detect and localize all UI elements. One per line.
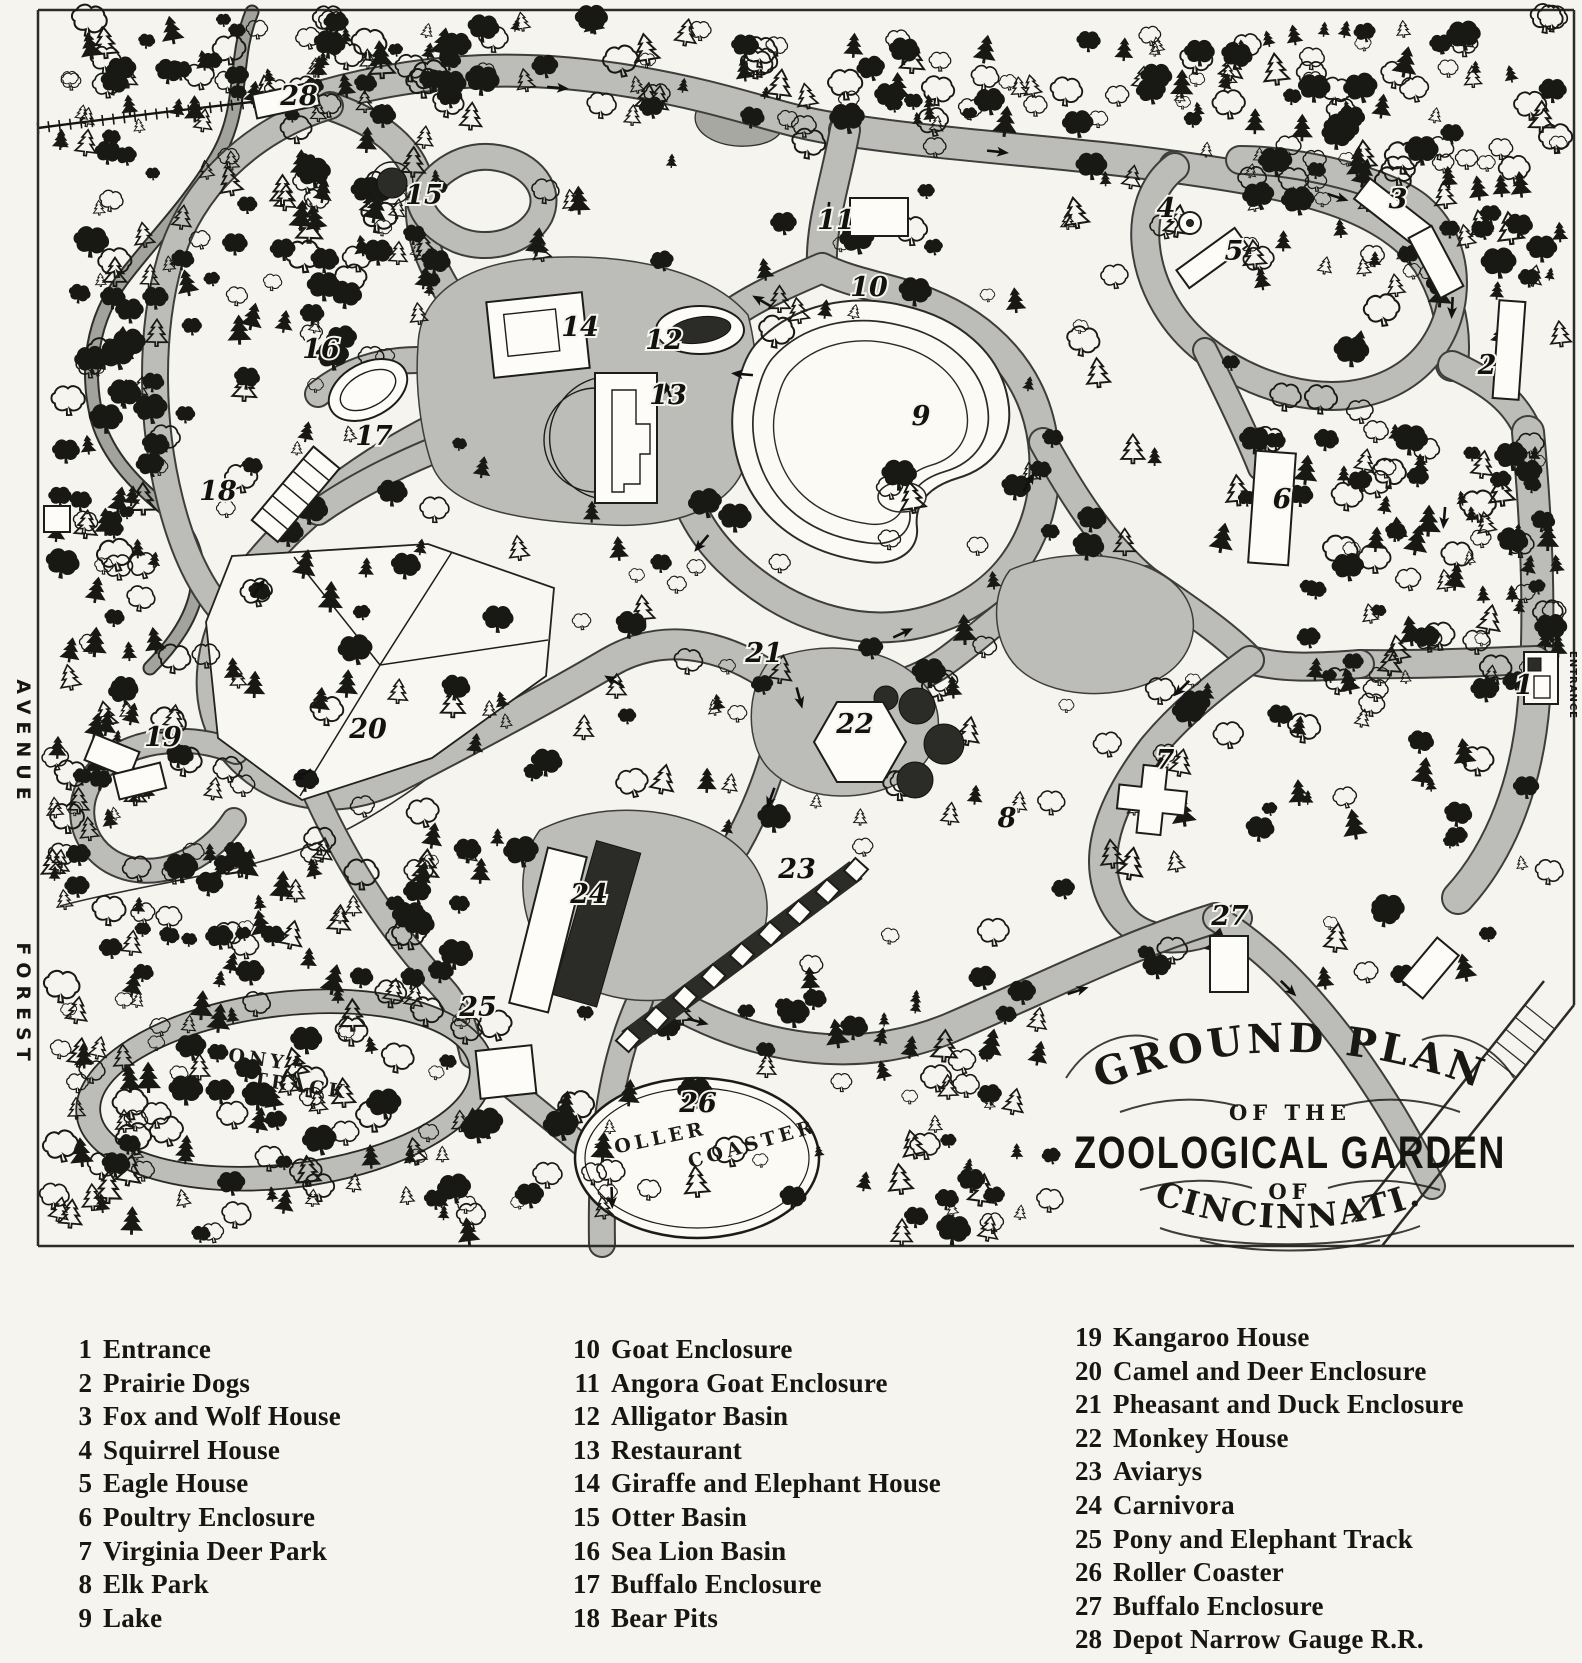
map-marker-23: 23 — [777, 854, 816, 885]
map-marker-19: 19 — [144, 722, 182, 753]
map-marker-4: 4 — [1157, 193, 1176, 224]
map-marker-11: 11 — [817, 205, 855, 236]
map-marker-18: 18 — [199, 476, 237, 507]
map-marker-1: 1 — [1515, 670, 1534, 701]
entrance-gate-label: ENTRANCE — [1567, 651, 1578, 719]
map-marker-3: 3 — [1389, 184, 1408, 215]
map-marker-2: 2 — [1477, 350, 1497, 381]
west-gate-shed — [44, 506, 70, 532]
map-marker-12: 12 — [645, 325, 683, 356]
map-marker-16: 16 — [302, 334, 340, 365]
map-marker-24: 24 — [569, 879, 608, 910]
map-marker-10: 10 — [850, 272, 888, 303]
zoo-map: PONY TRACK ROLLER COASTER — [0, 0, 1582, 1663]
map-marker-15: 15 — [405, 180, 443, 211]
map-marker-17: 17 — [355, 421, 393, 452]
map-marker-14: 14 — [561, 312, 599, 343]
forest-label: FOREST — [12, 942, 34, 1067]
title-line-zoological-garden: ZOOLOGICAL GARDEN — [1074, 1127, 1506, 1178]
map-marker-27: 27 — [1210, 901, 1249, 932]
map-marker-7: 7 — [1156, 745, 1175, 776]
angora-goat-building — [850, 198, 908, 236]
map-marker-28: 28 — [279, 81, 318, 112]
map-marker-13: 13 — [649, 380, 687, 411]
map-marker-5: 5 — [1225, 236, 1244, 267]
map-marker-26: 26 — [678, 1088, 717, 1119]
map-marker-6: 6 — [1273, 484, 1292, 515]
title-line-of-the: OF THE — [1229, 1100, 1351, 1125]
map-marker-20: 20 — [348, 714, 387, 745]
avenue-label: AVENUE — [12, 679, 34, 806]
map-marker-22: 22 — [835, 709, 874, 740]
buffalo-enclosure-shed — [1210, 936, 1248, 992]
prairie-dogs-pen — [1493, 300, 1526, 400]
map-marker-21: 21 — [744, 638, 783, 669]
map-marker-9: 9 — [912, 401, 931, 432]
map-marker-25: 25 — [458, 992, 497, 1023]
pony-track-shed — [476, 1045, 537, 1099]
map-marker-8: 8 — [997, 803, 1017, 834]
squirrel-house — [1179, 212, 1201, 234]
cincinnati-zoo-ground-plan: PONY TRACK ROLLER COASTER — [0, 0, 1582, 1663]
